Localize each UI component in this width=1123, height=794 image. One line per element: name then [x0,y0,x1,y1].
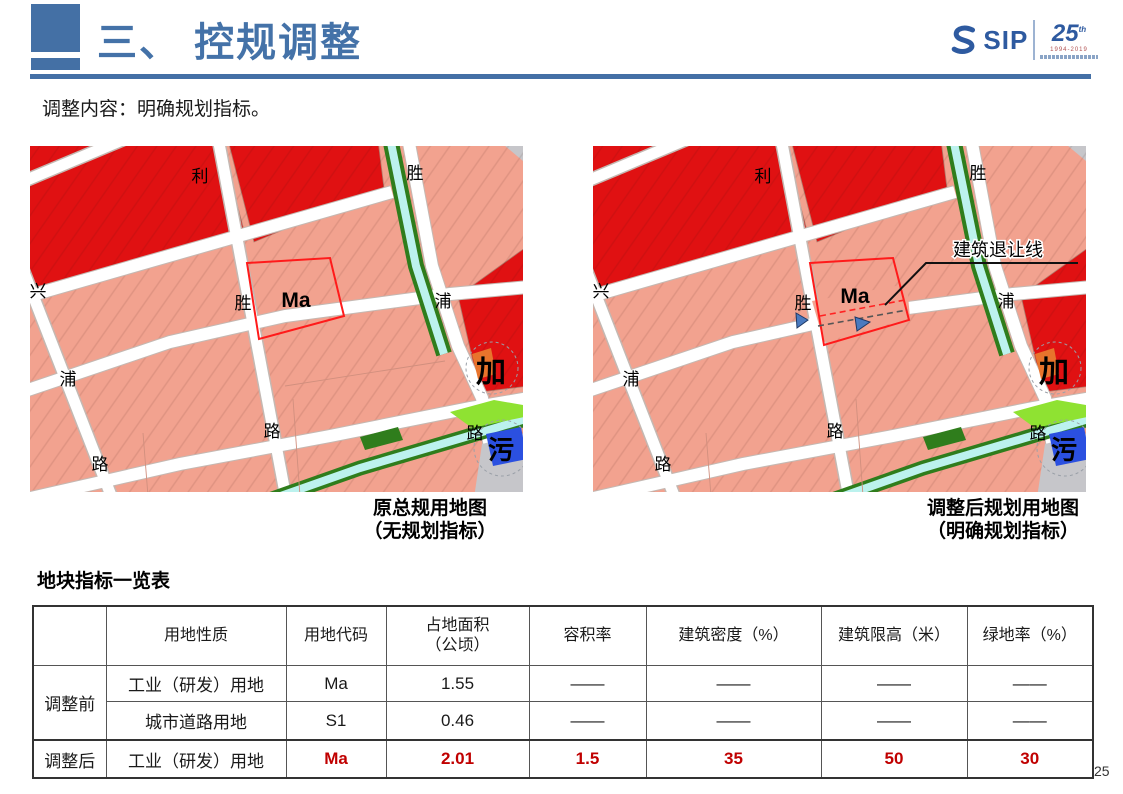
road-label: 利 [755,167,772,186]
road-label: 胜 [795,294,812,313]
title-accent-square [31,4,80,52]
title-accent-bar [31,58,80,70]
caption-line1: 原总规用地图 [280,497,580,520]
header-far: 容积率 [529,606,646,666]
facility-label: 加 [1039,356,1069,389]
header-empty [33,606,106,666]
row-group-before: 调整前 [33,666,106,741]
header-land-code: 用地代码 [286,606,386,666]
road-label: 浦 [60,370,77,389]
map-before: 利 胜 兴 胜 Ma 浦 浦 加 路 路 污 路 [30,146,523,492]
slide-subtitle: 调整内容：明确规划指标。 [42,94,270,121]
road-label: 胜 [970,164,987,183]
road-label: 路 [467,424,484,443]
road-label: 浦 [998,292,1015,311]
cell-green: —— [967,666,1093,702]
cell-nature: 工业（研发）用地 [106,740,286,778]
cell-area: 0.46 [386,702,529,741]
cell-density: 35 [646,740,821,778]
page-title: 三、 控规调整 [97,10,362,68]
page-number: 25 [1094,763,1110,779]
cell-height: —— [821,702,967,741]
facility-label: 污 [1051,435,1077,465]
cell-height: 50 [821,740,967,778]
plot-code-label: Ma [281,289,310,312]
cell-green: —— [967,702,1093,741]
header-area: 占地面积 （公顷） [386,606,529,666]
cell-far: —— [529,666,646,702]
cell-far: 1.5 [529,740,646,778]
road-label: 兴 [593,282,610,301]
cell-area: 2.01 [386,740,529,778]
cell-green: 30 [967,740,1093,778]
row-group-after: 调整后 [33,740,106,778]
road-label: 胜 [235,294,252,313]
road-label: 路 [827,422,844,441]
map-before-caption: 原总规用地图 （无规划指标） [280,497,580,543]
road-label: 胜 [407,164,424,183]
road-label: 路 [1030,424,1047,443]
cell-code: Ma [286,740,386,778]
road-label: 兴 [30,282,47,301]
anniversary-org-text [1040,55,1098,59]
road-label: 路 [655,455,672,474]
cell-far: —— [529,702,646,741]
caption-line2: （明确规划指标） [853,520,1123,543]
cell-code: Ma [286,666,386,702]
table-header-row: 用地性质 用地代码 占地面积 （公顷） 容积率 建筑密度（%） 建筑限高（米） … [33,606,1093,666]
table-row-before-1: 调整前 工业（研发）用地 Ma 1.55 —— —— —— —— [33,666,1093,702]
road-label: 浦 [435,292,452,311]
anniversary-logo: 25th 1994-2019 [1040,22,1098,59]
cell-height: —— [821,666,967,702]
cell-density: —— [646,702,821,741]
anniversary-25: 25th [1052,22,1086,46]
sip-s-icon [950,21,978,59]
cell-nature: 城市道路用地 [106,702,286,741]
road-label: 路 [264,422,281,441]
header-rule [30,74,1091,79]
map-before-svg: 利 胜 兴 胜 Ma 浦 浦 加 路 路 污 路 [30,146,523,492]
plot-indicator-table: 用地性质 用地代码 占地面积 （公顷） 容积率 建筑密度（%） 建筑限高（米） … [32,605,1094,779]
header-height-limit: 建筑限高（米） [821,606,967,666]
plot-code-label: Ma [840,285,869,308]
road-label: 利 [192,167,209,186]
logo-divider [1033,20,1035,60]
cell-nature: 工业（研发）用地 [106,666,286,702]
cell-code: S1 [286,702,386,741]
caption-line1: 调整后规划用地图 [853,497,1123,520]
table-title: 地块指标一览表 [37,566,170,593]
sip-logo-text: SIP [983,25,1028,56]
header-density: 建筑密度（%） [646,606,821,666]
facility-label: 污 [488,435,514,465]
facility-label: 加 [476,356,506,389]
road-label: 浦 [623,370,640,389]
header-land-nature: 用地性质 [106,606,286,666]
cell-density: —— [646,666,821,702]
header-green-ratio: 绿地率（%） [967,606,1093,666]
setback-label: 建筑退让线 [953,240,1043,260]
anniversary-years: 1994-2019 [1050,47,1088,53]
map-after: 建筑退让线 利 胜 兴 胜 Ma 浦 浦 加 路 路 污 路 [593,146,1086,492]
table-row-after: 调整后 工业（研发）用地 Ma 2.01 1.5 35 50 30 [33,740,1093,778]
cell-area: 1.55 [386,666,529,702]
map-after-caption: 调整后规划用地图 （明确规划指标） [853,497,1123,543]
sip-logo: SIP 25th 1994-2019 [950,14,1098,66]
caption-line2: （无规划指标） [280,520,580,543]
map-after-svg: 建筑退让线 利 胜 兴 胜 Ma 浦 浦 加 路 路 污 路 [593,146,1086,492]
table-row-before-2: 城市道路用地 S1 0.46 —— —— —— —— [33,702,1093,741]
road-label: 路 [92,455,109,474]
